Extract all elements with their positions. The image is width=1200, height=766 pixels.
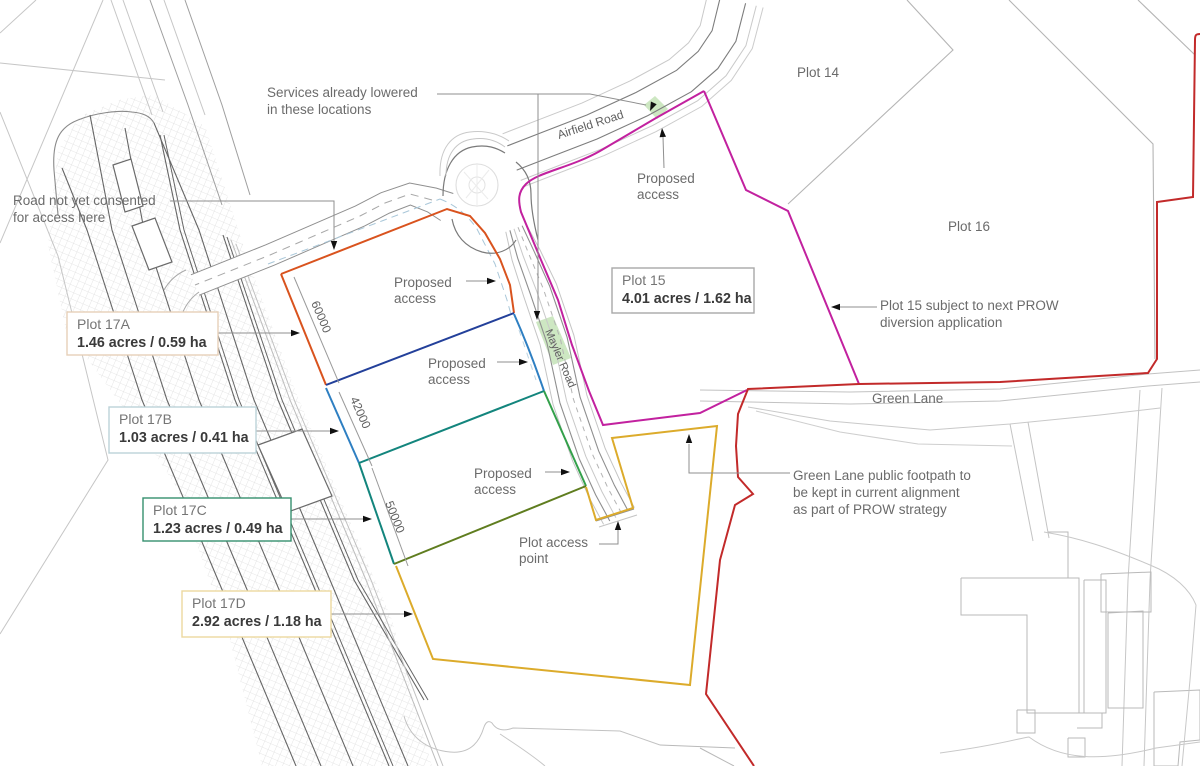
svg-text:Plot 17B: Plot 17B xyxy=(119,411,172,427)
svg-text:access: access xyxy=(428,372,470,387)
svg-text:Proposed: Proposed xyxy=(474,466,532,481)
svg-text:1.46 acres / 0.59 ha: 1.46 acres / 0.59 ha xyxy=(77,335,208,351)
svg-text:Plot 16: Plot 16 xyxy=(948,219,990,234)
svg-text:access: access xyxy=(394,291,436,306)
svg-text:in these locations: in these locations xyxy=(267,102,372,117)
svg-text:access: access xyxy=(637,187,679,202)
svg-text:as part of PROW strategy: as part of PROW strategy xyxy=(793,502,947,517)
svg-text:Green Lane public footpath to: Green Lane public footpath to xyxy=(793,468,971,483)
svg-text:Services already lowered: Services already lowered xyxy=(267,85,418,100)
svg-text:Plot access: Plot access xyxy=(519,535,588,550)
svg-text:1.03 acres / 0.41 ha: 1.03 acres / 0.41 ha xyxy=(119,430,250,446)
svg-text:be kept in current alignment: be kept in current alignment xyxy=(793,485,960,500)
svg-text:Proposed: Proposed xyxy=(637,171,695,186)
svg-text:Plot 17C: Plot 17C xyxy=(153,502,207,518)
svg-text:access: access xyxy=(474,482,516,497)
svg-text:4.01 acres / 1.62 ha: 4.01 acres / 1.62 ha xyxy=(622,291,753,307)
svg-text:Plot 14: Plot 14 xyxy=(797,65,840,80)
svg-text:point: point xyxy=(519,551,549,566)
svg-text:Proposed: Proposed xyxy=(428,356,486,371)
svg-text:1.23 acres / 0.49 ha: 1.23 acres / 0.49 ha xyxy=(153,521,284,537)
svg-text:Green Lane: Green Lane xyxy=(872,391,943,406)
svg-text:for access here: for access here xyxy=(13,210,105,225)
svg-text:Proposed: Proposed xyxy=(394,275,452,290)
svg-text:Road not yet consented: Road not yet consented xyxy=(13,193,156,208)
svg-text:2.92 acres / 1.18 ha: 2.92 acres / 1.18 ha xyxy=(192,614,323,630)
svg-text:Plot 15 subject to next PROW: Plot 15 subject to next PROW xyxy=(880,298,1059,313)
svg-text:diversion application: diversion application xyxy=(880,315,1002,330)
svg-text:Plot 17A: Plot 17A xyxy=(77,316,131,332)
svg-text:Plot 15: Plot 15 xyxy=(622,272,666,288)
svg-text:Plot 17D: Plot 17D xyxy=(192,595,246,611)
